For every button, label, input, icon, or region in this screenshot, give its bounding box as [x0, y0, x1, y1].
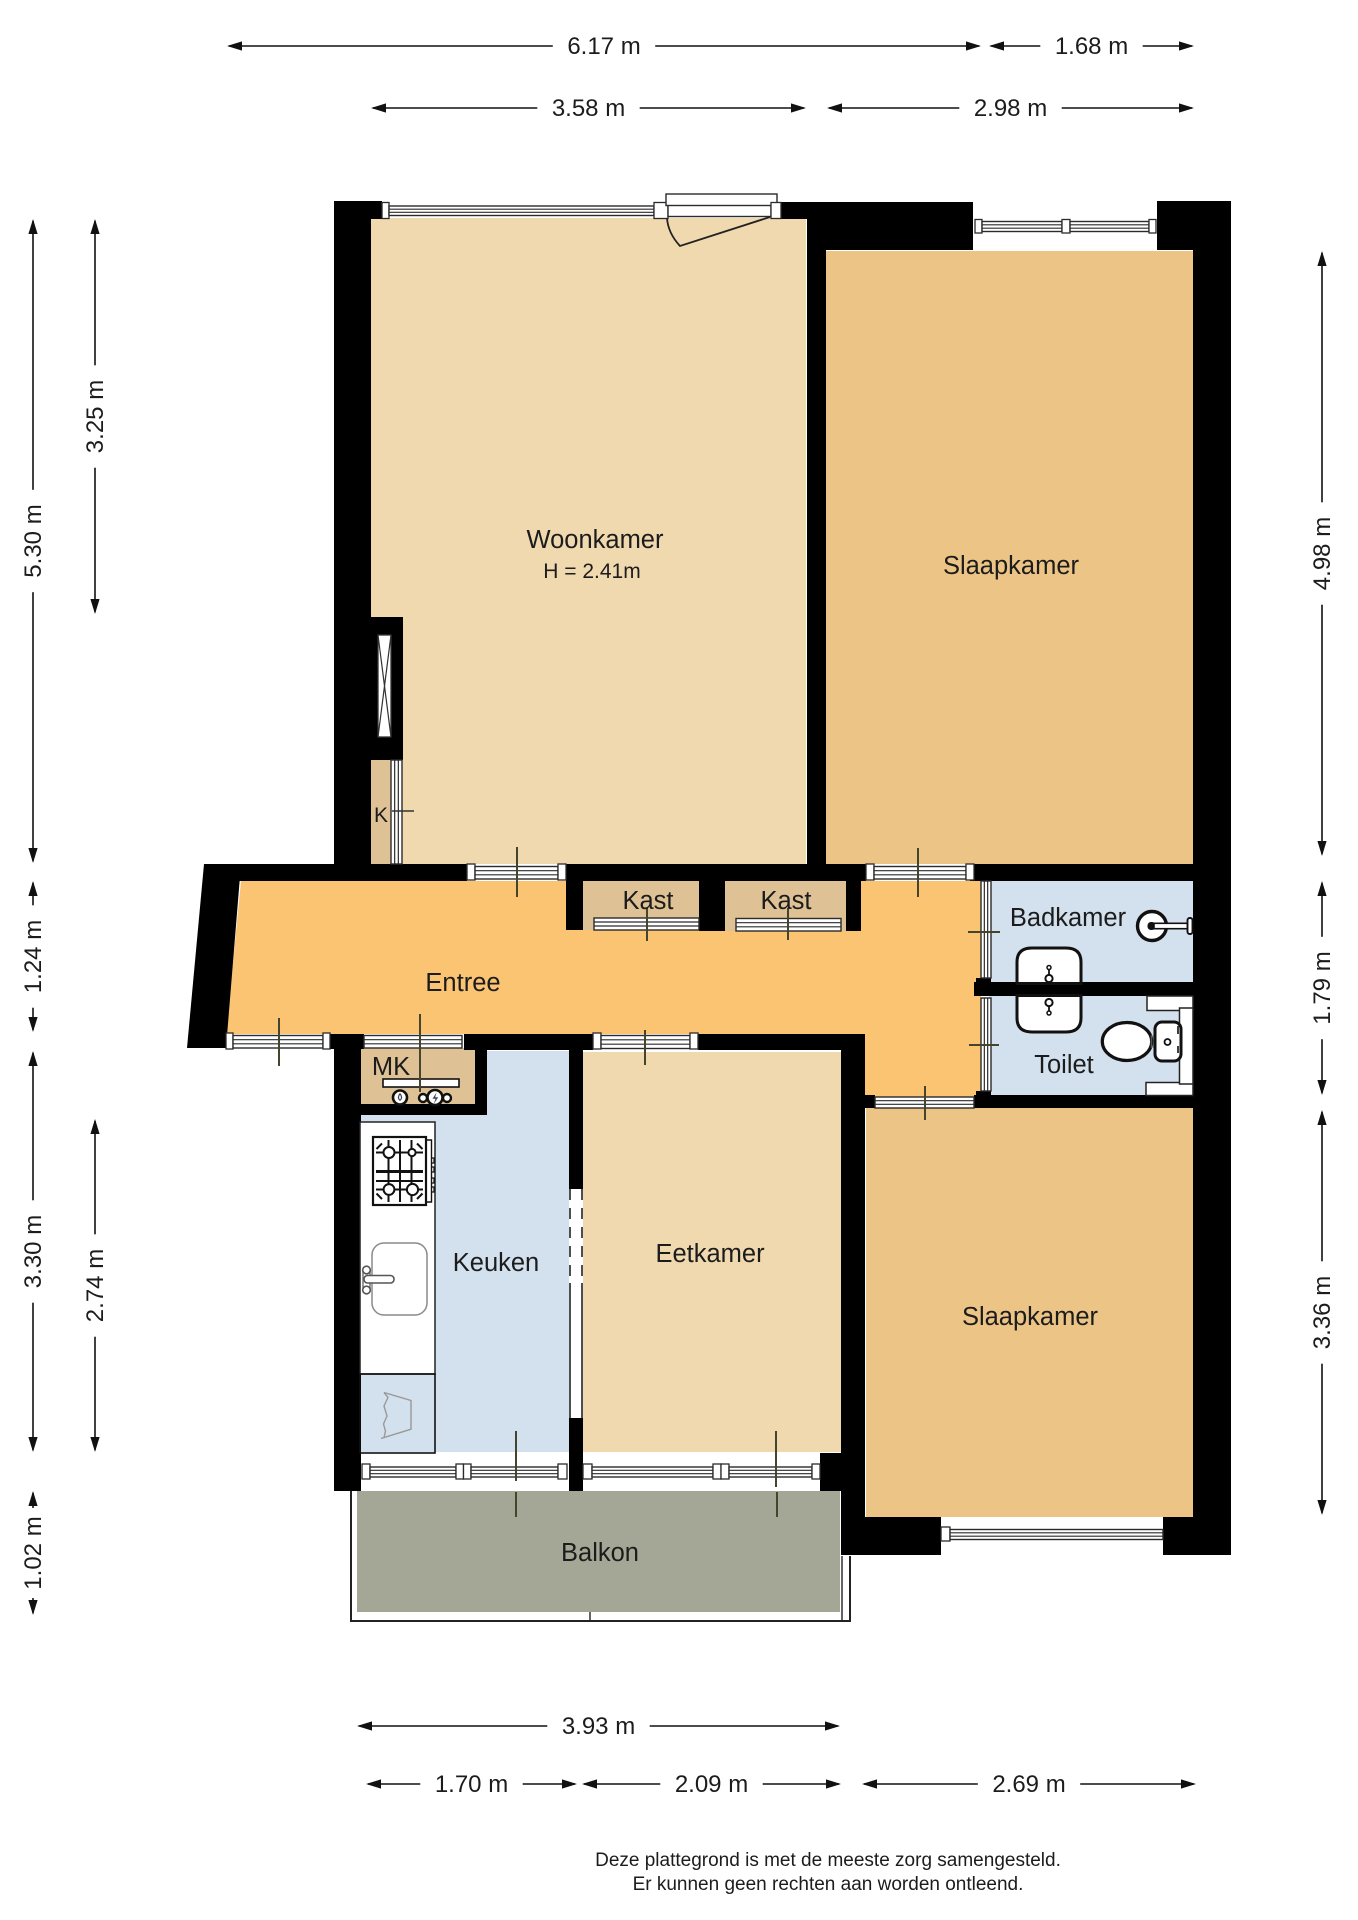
svg-text:Badkamer: Badkamer [1010, 904, 1127, 932]
svg-text:2.09 m: 2.09 m [675, 1771, 748, 1798]
svg-text:Slaapkamer: Slaapkamer [962, 1303, 1099, 1331]
svg-text:H = 2.41m: H = 2.41m [543, 560, 640, 583]
svg-text:MK: MK [372, 1053, 410, 1081]
svg-text:3.58 m: 3.58 m [552, 95, 625, 122]
svg-text:3.30 m: 3.30 m [20, 1215, 47, 1288]
svg-text:Keuken: Keuken [453, 1249, 540, 1277]
svg-text:3.36 m: 3.36 m [1309, 1276, 1336, 1349]
svg-text:Entree: Entree [425, 969, 500, 997]
svg-text:Er kunnen geen rechten aan wor: Er kunnen geen rechten aan worden ontlee… [633, 1874, 1024, 1895]
svg-text:3.93 m: 3.93 m [562, 1713, 635, 1740]
svg-text:Kast: Kast [622, 887, 673, 915]
svg-text:1.02 m: 1.02 m [20, 1516, 47, 1589]
svg-text:2.74 m: 2.74 m [82, 1249, 109, 1322]
svg-text:K: K [374, 804, 388, 827]
svg-text:6.17 m: 6.17 m [567, 33, 640, 60]
svg-text:1.79 m: 1.79 m [1309, 951, 1336, 1024]
svg-text:Eetkamer: Eetkamer [655, 1240, 765, 1268]
svg-text:1.68 m: 1.68 m [1055, 33, 1128, 60]
svg-text:Woonkamer: Woonkamer [526, 526, 664, 554]
svg-text:1.70 m: 1.70 m [435, 1771, 508, 1798]
svg-text:2.98 m: 2.98 m [974, 95, 1047, 122]
svg-text:Slaapkamer: Slaapkamer [943, 552, 1080, 580]
svg-text:Toilet: Toilet [1034, 1051, 1094, 1079]
svg-text:3.25 m: 3.25 m [82, 380, 109, 453]
svg-text:Deze plattegrond is met de mee: Deze plattegrond is met de meeste zorg s… [595, 1850, 1061, 1871]
svg-text:1.24 m: 1.24 m [20, 920, 47, 993]
svg-text:2.69 m: 2.69 m [992, 1771, 1065, 1798]
svg-text:5.30 m: 5.30 m [20, 504, 47, 577]
svg-text:Kast: Kast [760, 887, 811, 915]
svg-text:4.98 m: 4.98 m [1309, 517, 1336, 590]
svg-text:Balkon: Balkon [561, 1539, 639, 1567]
